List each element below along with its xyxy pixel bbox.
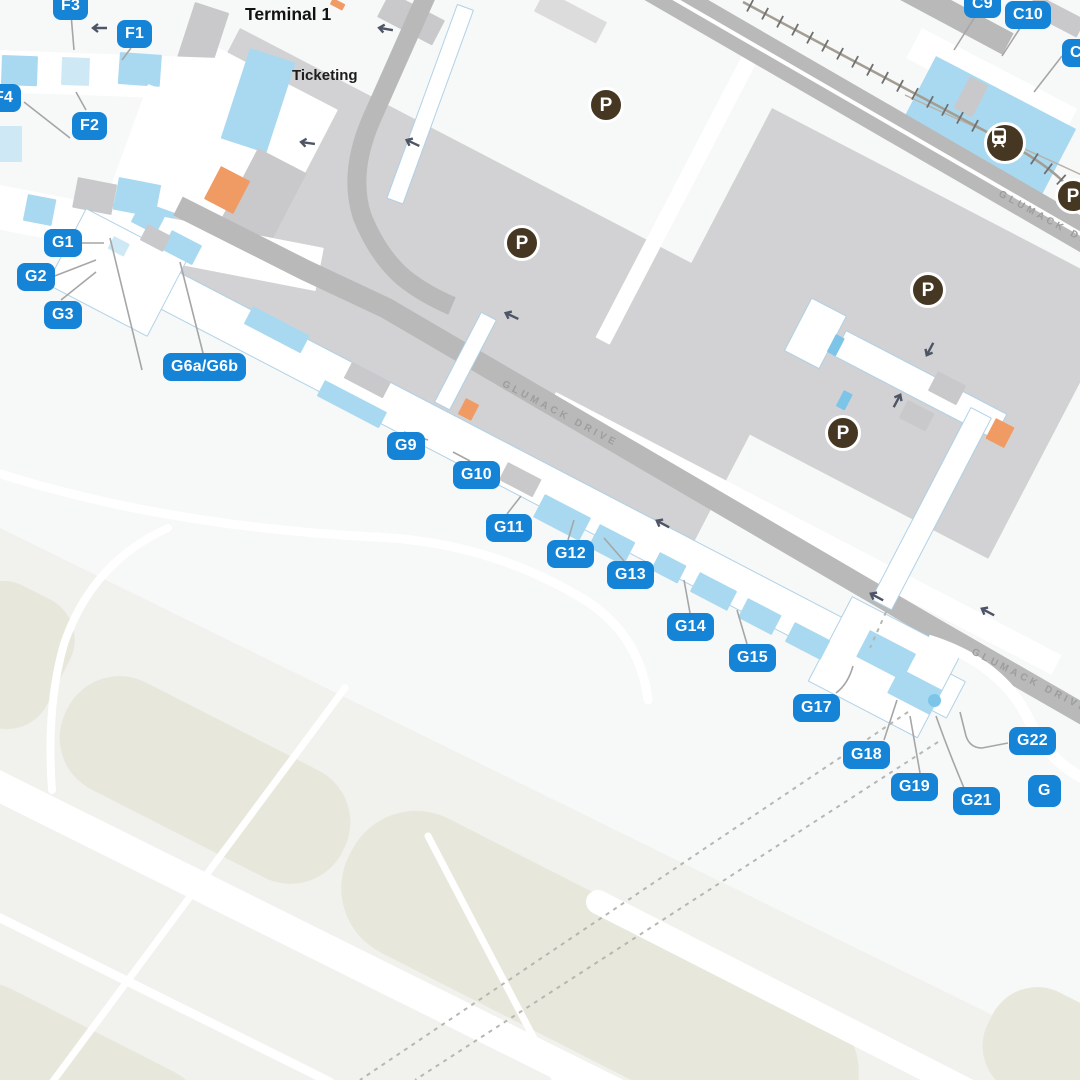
airport-terminal-map: PPPPP Terminal 1 Ticketing GLUMACK DRIVE…	[0, 0, 1080, 1080]
road-name-label: GLUMACK DRIVE	[970, 647, 1080, 716]
gate-label-G10[interactable]: G10	[453, 461, 500, 489]
gate-label-G11[interactable]: G11	[486, 514, 532, 542]
gate-label-G2[interactable]: G2	[17, 263, 55, 291]
gate-label-G21[interactable]: G21	[953, 787, 1000, 815]
terminal-1-title: Terminal 1	[245, 4, 331, 25]
gate-label-G13[interactable]: G13	[607, 561, 654, 589]
gate-label-G9[interactable]: G9	[387, 432, 425, 460]
gate-label-G18[interactable]: G18	[843, 741, 890, 769]
gate-label-G17[interactable]: G17	[793, 694, 840, 722]
gate-label-G15[interactable]: G15	[729, 644, 776, 672]
road-name-label: GLUMACK DRIVE	[997, 189, 1080, 262]
gate-label-G3[interactable]: G3	[44, 301, 82, 329]
gate-label-G6a-G6b[interactable]: G6a/G6b	[163, 353, 246, 381]
gate-label-F2[interactable]: F2	[72, 112, 107, 140]
gate-label-F4[interactable]: F4	[0, 84, 21, 112]
gate-label-C10[interactable]: C10	[1005, 1, 1051, 29]
gate-label-G[interactable]: G	[1028, 775, 1061, 807]
ticketing-label: Ticketing	[292, 67, 358, 84]
gate-label-F3[interactable]: F3	[53, 0, 88, 20]
gate-label-G22[interactable]: G22	[1009, 727, 1056, 755]
gate-label-C[interactable]: C	[1062, 39, 1080, 67]
gate-label-G19[interactable]: G19	[891, 773, 938, 801]
gate-label-G14[interactable]: G14	[667, 613, 714, 641]
road-name-label: GLUMACK DRIVE	[500, 379, 620, 450]
gate-label-C9[interactable]: C9	[964, 0, 1001, 18]
gate-label-G1[interactable]: G1	[44, 229, 82, 257]
gate-label-F1[interactable]: F1	[117, 20, 152, 48]
gate-label-G12[interactable]: G12	[547, 540, 594, 568]
